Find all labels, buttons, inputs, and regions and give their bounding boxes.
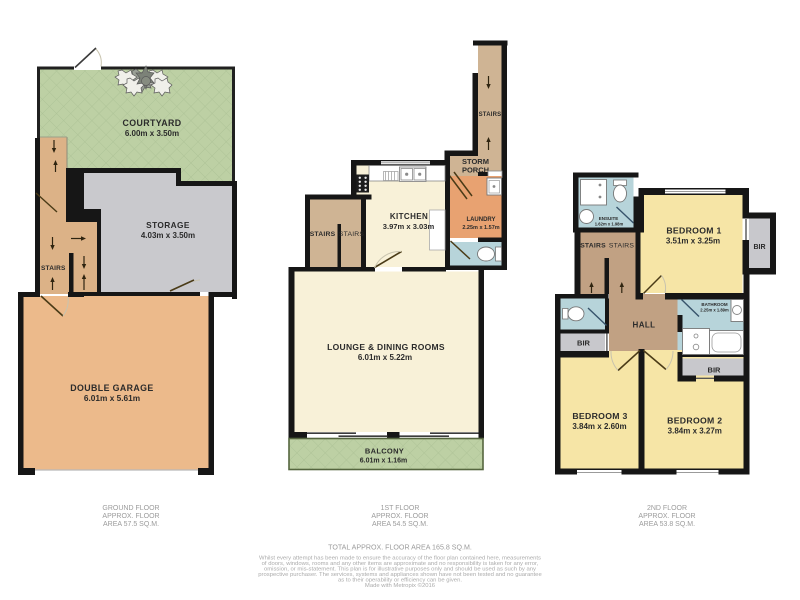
svg-text:3.97m x 3.03m: 3.97m x 3.03m (383, 222, 435, 231)
svg-text:ENSUITE: ENSUITE (599, 216, 619, 221)
svg-text:STAIRS: STAIRS (609, 243, 635, 250)
svg-text:6.01m x 1.16m: 6.01m x 1.16m (360, 458, 407, 465)
svg-text:6.01m x 5.22m: 6.01m x 5.22m (358, 353, 412, 362)
svg-text:BEDROOM 2: BEDROOM 2 (667, 416, 722, 426)
svg-text:3.84m x 2.60m: 3.84m x 2.60m (572, 422, 626, 431)
svg-text:BIR: BIR (708, 366, 722, 375)
svg-text:STORAGE: STORAGE (146, 220, 190, 230)
svg-text:2.25m x 1.89m: 2.25m x 1.89m (700, 308, 729, 313)
svg-text:STAIRS: STAIRS (310, 231, 336, 238)
svg-text:STAIRS: STAIRS (41, 265, 66, 272)
svg-text:AREA 53.8 SQ.M.: AREA 53.8 SQ.M. (639, 521, 695, 528)
svg-text:LOUNGE & DINING ROOMS: LOUNGE & DINING ROOMS (327, 342, 445, 352)
svg-text:GROUND FLOOR: GROUND FLOOR (102, 505, 159, 512)
svg-text:6.00m x 3.50m: 6.00m x 3.50m (125, 129, 179, 138)
svg-text:STAIRS: STAIRS (479, 112, 502, 118)
svg-text:6.01m x 5.61m: 6.01m x 5.61m (84, 393, 140, 403)
svg-text:TOTAL APPROX. FLOOR AREA 165.8: TOTAL APPROX. FLOOR AREA 165.8 SQ.M. (328, 544, 472, 552)
svg-text:BATHROOM: BATHROOM (701, 302, 727, 307)
svg-text:STAIRS: STAIRS (580, 243, 606, 250)
svg-text:BIR: BIR (577, 339, 591, 348)
svg-text:APPROX. FLOOR: APPROX. FLOOR (371, 513, 428, 520)
svg-text:APPROX. FLOOR: APPROX. FLOOR (638, 513, 695, 520)
svg-text:3.51m x 3.25m: 3.51m x 3.25m (666, 237, 720, 246)
svg-text:STAIRS: STAIRS (339, 231, 365, 238)
svg-text:3.84m x 3.27m: 3.84m x 3.27m (668, 427, 722, 436)
svg-text:BALCONY: BALCONY (365, 447, 404, 456)
svg-text:APPROX. FLOOR: APPROX. FLOOR (102, 513, 159, 520)
svg-text:LAUNDRY: LAUNDRY (466, 217, 495, 223)
svg-text:2ND FLOOR: 2ND FLOOR (647, 505, 687, 512)
svg-text:COURTYARD: COURTYARD (123, 118, 182, 128)
svg-text:BEDROOM 1: BEDROOM 1 (666, 226, 721, 236)
svg-text:1.62m x 1.98m: 1.62m x 1.98m (595, 222, 624, 227)
svg-text:HALL: HALL (633, 321, 656, 330)
svg-text:DOUBLE GARAGE: DOUBLE GARAGE (70, 383, 153, 393)
svg-text:AREA 54.5 SQ.M.: AREA 54.5 SQ.M. (372, 521, 428, 528)
svg-text:BIR: BIR (753, 244, 765, 251)
svg-text:KITCHEN: KITCHEN (390, 212, 428, 221)
svg-text:1ST FLOOR: 1ST FLOOR (381, 505, 420, 512)
svg-text:4.03m x 3.50m: 4.03m x 3.50m (141, 231, 195, 240)
svg-text:AREA 57.5 SQ.M.: AREA 57.5 SQ.M. (103, 521, 159, 528)
svg-text:BEDROOM 3: BEDROOM 3 (572, 411, 627, 421)
svg-text:Made with Metropix ©2016: Made with Metropix ©2016 (365, 582, 436, 589)
svg-text:2.25m x 1.57m: 2.25m x 1.57m (462, 225, 499, 231)
